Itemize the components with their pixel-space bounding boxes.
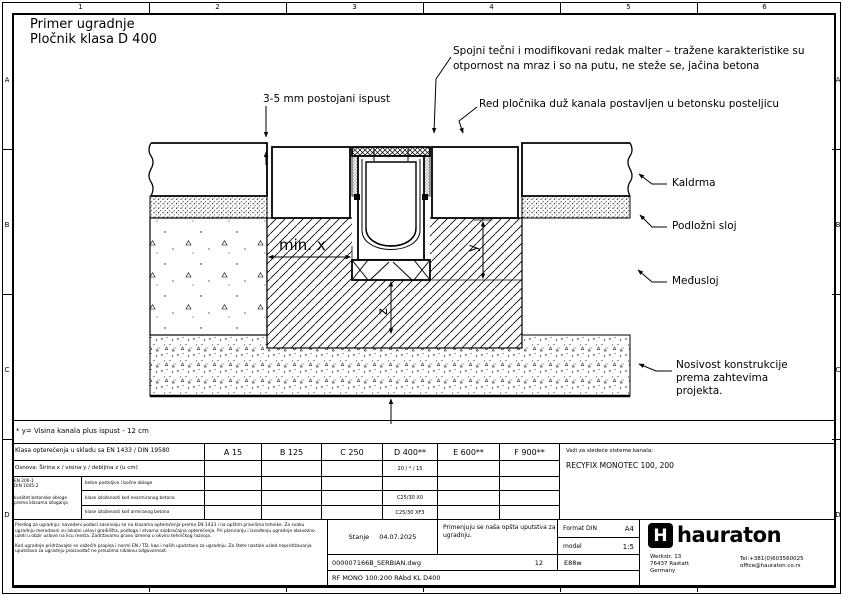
dimension-y: y bbox=[466, 244, 481, 252]
product-designation-cell: RF MONO 100:200 RAbd KL D400 bbox=[328, 571, 640, 585]
scale-value: 1:5 bbox=[623, 543, 634, 551]
empty-cell bbox=[205, 491, 262, 506]
valid-systems-cell: Važi za sledeće sisteme kanala: RECYFIX … bbox=[560, 444, 835, 520]
format-value: A4 bbox=[625, 525, 634, 533]
empty-cell bbox=[438, 491, 500, 506]
label-bedding-layer: Podložni sloj bbox=[672, 220, 737, 233]
label-kaldrma: Kaldrma bbox=[672, 177, 716, 190]
email-address: office@hauraton.co.rs bbox=[740, 563, 804, 570]
disclaimer-paragraph-2: Kod ugradnje pridržavajte se važećih pro… bbox=[15, 544, 322, 555]
label-bearing-l3: projekta. bbox=[676, 385, 788, 398]
dimension-min-x: min. x bbox=[279, 236, 326, 254]
code-cell: E88w bbox=[558, 555, 640, 571]
exposure-unreinforced-d400-value: C25/30 X0 bbox=[383, 491, 438, 506]
drawing-sheet: 1 2 3 4 5 6 A B C D A B C D bbox=[0, 0, 842, 595]
company-contact: Tel:+381(0)603560025 office@hauraton.co.… bbox=[740, 556, 804, 570]
valid-systems-value: RECYFIX MONOTEC 100, 200 bbox=[560, 454, 835, 470]
empty-cell bbox=[262, 477, 322, 491]
empty-cell bbox=[438, 477, 500, 491]
base-b125-cell bbox=[262, 461, 322, 477]
valid-systems-label: Važi za sledeće sisteme kanala: bbox=[560, 444, 835, 454]
class-e600-header: E 600** bbox=[438, 444, 500, 461]
concrete-row-2-label: klase izloženosti kod nearmiranog betona bbox=[82, 491, 205, 506]
address-line-1: Werkstr. 13 bbox=[650, 554, 689, 561]
titleblock-top-rule bbox=[12, 420, 835, 421]
format-label: Format DIN bbox=[563, 525, 597, 532]
norm-desc-2: prema klasama izlaganja bbox=[14, 501, 81, 506]
dimension-z: z bbox=[376, 308, 391, 315]
label-bearing-l2: prema zahtevima bbox=[676, 372, 788, 385]
concrete-row-1-label: beton posteljice i bočne obloge bbox=[82, 477, 205, 491]
scale-label: model bbox=[563, 543, 582, 550]
class-c250-header: C 250 bbox=[322, 444, 383, 461]
annotation-protrusion: 3-5 mm postojani ispust bbox=[263, 92, 390, 107]
disclaimer-cell: Predlog za ugradnju: navedeni podaci zas… bbox=[12, 520, 328, 585]
title-block-table: Klasa opterećenja u skladu sa EN 1433 / … bbox=[12, 443, 835, 585]
empty-cell bbox=[322, 506, 383, 520]
address-line-3: Germany bbox=[650, 568, 689, 575]
empty-cell bbox=[500, 491, 560, 506]
annotation-joint-mortar: Spojni tečni i modifikovani redak malter… bbox=[453, 44, 805, 74]
base-c250-cell bbox=[322, 461, 383, 477]
general-note-cell: Primenjuju se naša opšta uputstva za ugr… bbox=[438, 520, 558, 555]
label-interlayer: Međusloj bbox=[672, 275, 719, 288]
class-a15-header: A 15 bbox=[205, 444, 262, 461]
annotation-joint-mortar-l2: otpornost na mraz i so na putu, ne steže… bbox=[453, 59, 805, 74]
base-dims-label-cell: Osnova: Širina x / visina y / debljina z… bbox=[12, 461, 205, 477]
annotation-joint-mortar-l1: Spojni tečni i modifikovani redak malter… bbox=[453, 44, 805, 59]
class-d400-header: D 400** bbox=[383, 444, 438, 461]
status-cell: Stanje 04.07.2025 bbox=[328, 520, 438, 555]
company-address: Werkstr. 13 76437 Rastatt Germany bbox=[650, 554, 689, 575]
address-line-2: 76437 Rastatt bbox=[650, 561, 689, 568]
norms-cell: EN 206-1 DIN 1045-2 kvalitet betonske ob… bbox=[12, 477, 82, 520]
base-a15-cell bbox=[205, 461, 262, 477]
format-scale-cell: Format DIN A4 model 1:5 bbox=[558, 520, 640, 555]
concrete-row-3-label: klase izloženosti kod armiranog betona bbox=[82, 506, 205, 520]
status-label: Stanje bbox=[349, 533, 370, 541]
status-date: 04.07.2025 bbox=[379, 533, 416, 541]
brand-name: hauraton bbox=[677, 523, 781, 548]
annotation-paver-row: Red pločnika duž kanala postavljen u bet… bbox=[479, 97, 779, 112]
norm-din1045: DIN 1045-2 bbox=[14, 484, 81, 489]
logo-cell: H hauraton Werkstr. 13 76437 Rastatt Ger… bbox=[640, 520, 835, 585]
title-line-2: Pločnik klasa D 400 bbox=[30, 32, 157, 47]
hauraton-logo-icon: H bbox=[648, 523, 673, 548]
empty-cell bbox=[205, 506, 262, 520]
base-d400-value: 20 / * / 15 bbox=[383, 461, 438, 477]
disclaimer-paragraph-1: Predlog za ugradnju: navedeni podaci zas… bbox=[15, 523, 322, 540]
empty-cell bbox=[500, 506, 560, 520]
empty-cell bbox=[322, 477, 383, 491]
class-b125-header: B 125 bbox=[262, 444, 322, 461]
empty-cell bbox=[383, 477, 438, 491]
empty-cell bbox=[438, 506, 500, 520]
base-e600-cell bbox=[438, 461, 500, 477]
label-bearing-structure: Nosivost konstrukcije prema zahtevima pr… bbox=[676, 359, 788, 398]
phone-number: Tel:+381(0)603560025 bbox=[740, 556, 804, 563]
file-name: 000007166B_SERBIAN.dwg bbox=[332, 559, 421, 567]
empty-cell bbox=[205, 477, 262, 491]
exposure-reinforced-d400-value: C25/30 XF3 bbox=[383, 506, 438, 520]
footnote-y-definition: * y= Visina kanala plus ispust - 12 cm bbox=[16, 427, 149, 435]
page-title: Primer ugradnje Pločnik klasa D 400 bbox=[30, 17, 157, 47]
label-bearing-l1: Nosivost konstrukcije bbox=[676, 359, 788, 372]
sheet-number: 12 bbox=[535, 559, 543, 567]
empty-cell bbox=[322, 491, 383, 506]
empty-cell bbox=[262, 491, 322, 506]
file-cell: 000007166B_SERBIAN.dwg 12 bbox=[328, 555, 558, 571]
title-line-1: Primer ugradnje bbox=[30, 17, 157, 32]
empty-cell bbox=[500, 477, 560, 491]
class-f900-header: F 900** bbox=[500, 444, 560, 461]
load-class-label-cell: Klasa opterećenja u skladu sa EN 1433 / … bbox=[12, 444, 205, 461]
empty-cell bbox=[262, 506, 322, 520]
base-f900-cell bbox=[500, 461, 560, 477]
